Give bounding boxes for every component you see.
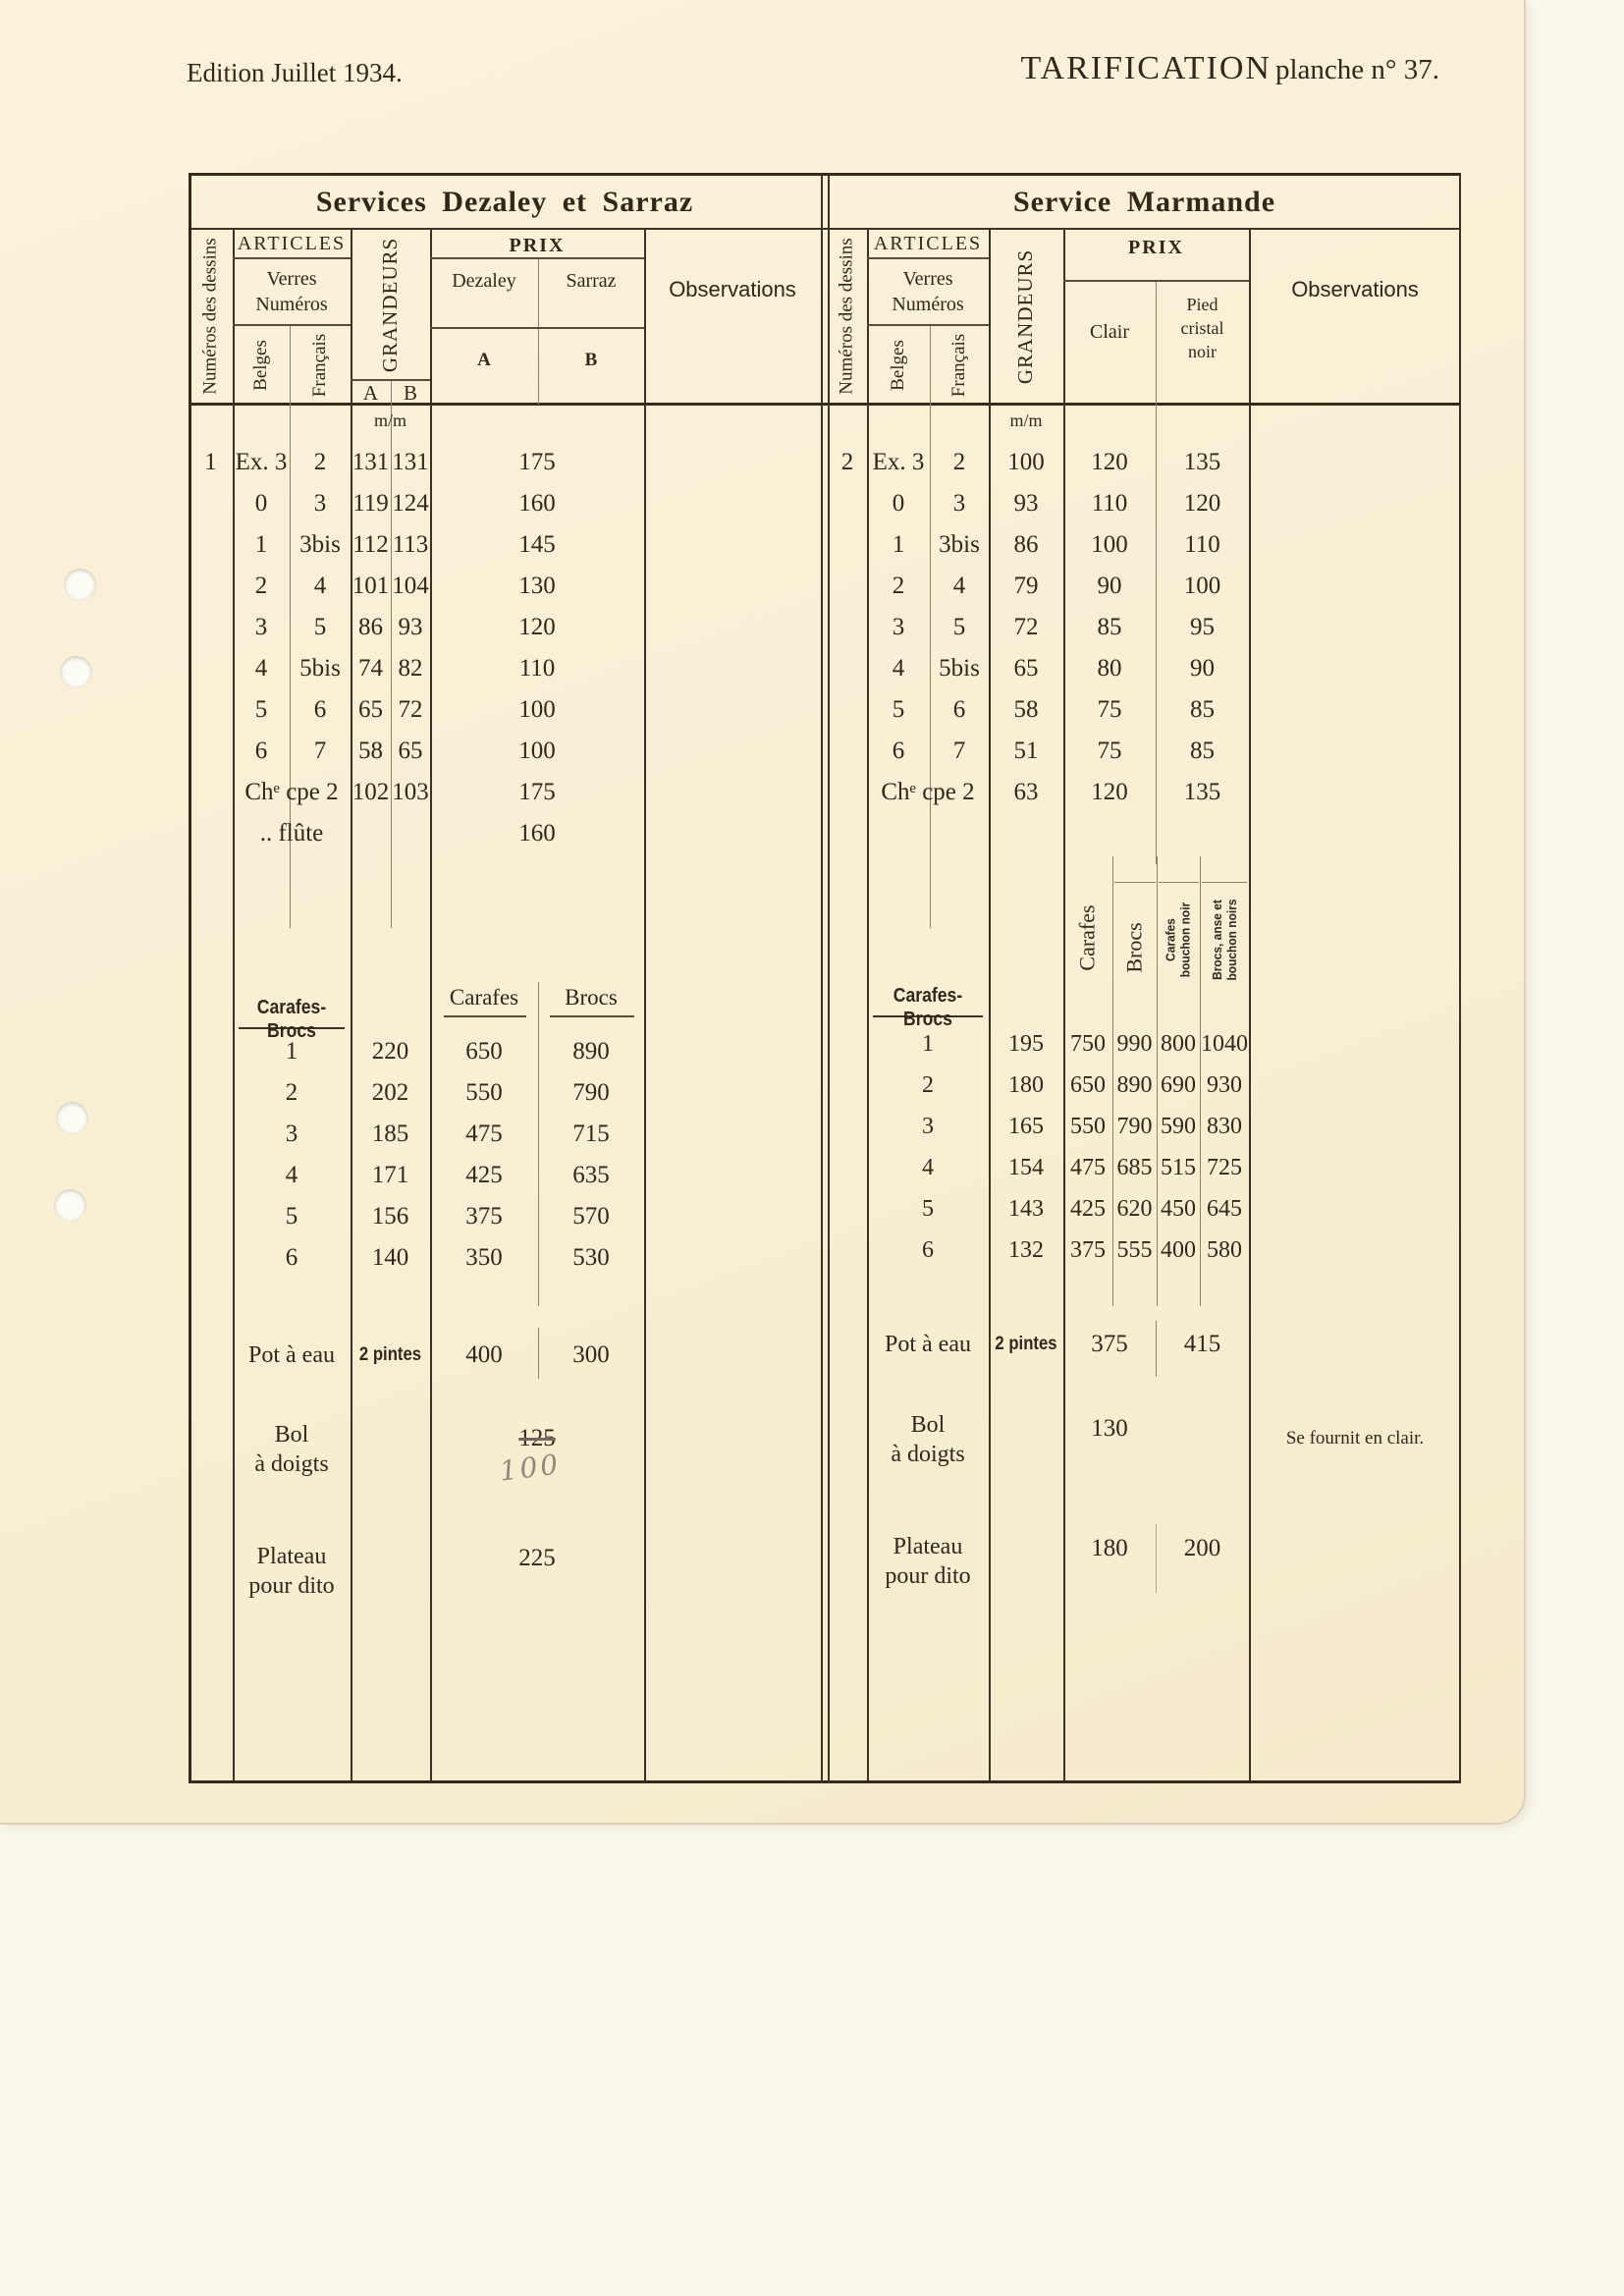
grandeur: 165 [989, 1114, 1063, 1140]
grandeur: 185 [351, 1121, 430, 1148]
right-francais-header: Français [930, 328, 989, 403]
left-prix-a-label: A [430, 350, 538, 372]
left-carafes-rows: 1 220 650 890 2 202 550 790 3 185 475 71… [233, 1031, 644, 1279]
rule [828, 173, 830, 1783]
grandeur: 140 [351, 1244, 430, 1272]
verre-belge: 0 [233, 490, 290, 518]
grandeur-b: 124 [391, 490, 430, 518]
carafe-numero: 5 [233, 1203, 351, 1230]
left-brocs-col-header: Brocs [538, 984, 644, 1011]
grandeur-a: 112 [351, 531, 391, 559]
right-belges-label: Belges [888, 340, 909, 391]
rule [189, 173, 1461, 176]
left-table-title: Services Dezaley et Sarraz [189, 185, 821, 220]
prix-broc-anse: 725 [1200, 1155, 1249, 1181]
verre-belge: 2 [867, 573, 930, 600]
prix-clair: 75 [1063, 696, 1156, 724]
prix-broc: 620 [1112, 1196, 1157, 1223]
left-prix-b-label: B [538, 350, 644, 372]
right-observations-header: Observations [1249, 277, 1461, 302]
prix-carafe-bouchon: 515 [1157, 1155, 1200, 1181]
right-plateau-label-2: pour dito [867, 1561, 989, 1591]
prix-broc: 555 [1112, 1237, 1157, 1264]
table-row: 3 5 72 85 95 [867, 607, 1249, 648]
right-brocs-anse-vcol-header: Brocs, anse etbouchon noirs [1200, 868, 1249, 1011]
right-table-title: Service Marmande [828, 185, 1461, 220]
right-verres-label: Verres [867, 267, 989, 291]
verre-belge: Ex. 3 [867, 449, 930, 476]
verre-francais: 2 [930, 449, 989, 476]
carafe-numero: 1 [867, 1031, 989, 1058]
prix-carafe-bouchon: 690 [1157, 1072, 1200, 1099]
left-dessins-header: Numéros des dessins [189, 234, 233, 399]
carafe-numero: 5 [867, 1196, 989, 1223]
prix-carafe: 750 [1063, 1031, 1112, 1058]
right-pot-clair: 375 [1063, 1324, 1156, 1365]
rule [233, 257, 351, 259]
table-row: 3 5 86 93 120 [233, 607, 644, 648]
rule [430, 327, 644, 329]
prix-pied: 135 [1156, 449, 1249, 476]
brocs-anse-vlabel: Brocs, anse etbouchon noirs [1210, 899, 1239, 980]
table-row: 5 156 375 570 [233, 1196, 644, 1237]
verre-belge: Ex. 3 [233, 449, 290, 476]
grandeur: 65 [989, 655, 1063, 683]
right-brocs-vcol-header: Brocs [1112, 884, 1157, 1011]
verre-francais: 2 [290, 449, 351, 476]
rule [867, 324, 989, 326]
verre-belge: 4 [867, 655, 930, 683]
grandeur-b: 65 [391, 738, 430, 765]
prix: 130 [430, 573, 644, 600]
right-plateau-pied: 200 [1156, 1534, 1249, 1563]
grandeur: 86 [989, 531, 1063, 559]
prix-broc: 715 [538, 1121, 644, 1148]
verre-francais: 5 [930, 614, 989, 641]
right-belges-header: Belges [867, 328, 930, 403]
left-bol-label-2: à doigts [233, 1449, 351, 1479]
left-pot-size: 2 pintes [355, 1335, 425, 1376]
table-row: 1 3bis 112 113 145 [233, 524, 644, 566]
prix: 160 [430, 490, 644, 518]
right-dessins-label: Numéros des dessins [837, 238, 858, 394]
table-row: 4 5bis 74 82 110 [233, 648, 644, 689]
grandeur-a: 119 [351, 490, 391, 518]
grandeur: 154 [989, 1155, 1063, 1181]
table-row: 1 3bis 86 100 110 [867, 524, 1249, 566]
right-prix-header: PRIX [1063, 236, 1249, 259]
grandeur-a: 101 [351, 573, 391, 600]
prix-pied: 100 [1156, 573, 1249, 600]
carafe-numero: 2 [233, 1079, 351, 1107]
grandeur: 93 [989, 490, 1063, 518]
right-bol-label-2: à doigts [867, 1440, 989, 1469]
prix-pied: 120 [1156, 490, 1249, 518]
verre-francais: 4 [290, 573, 351, 600]
right-plateau-label-1: Plateau [867, 1532, 989, 1561]
grandeur: 72 [989, 614, 1063, 641]
prix-carafe: 550 [430, 1079, 538, 1107]
table-row: 3 185 475 715 [233, 1114, 644, 1155]
verre-belge: 3 [233, 614, 290, 641]
prix-broc: 635 [538, 1162, 644, 1189]
verre-francais: 6 [290, 696, 351, 724]
prix-carafe-bouchon: 800 [1157, 1031, 1200, 1058]
prix-carafe: 550 [1063, 1114, 1112, 1140]
right-pied-label-1: Pied [1156, 295, 1249, 316]
rule [189, 1780, 1461, 1783]
left-pot-prix-b: 300 [538, 1335, 644, 1376]
right-coupe-grandeur: 63 [989, 772, 1063, 813]
rule [444, 1015, 526, 1017]
prix-carafe-bouchon: 450 [1157, 1196, 1200, 1223]
verre-francais: 3bis [930, 531, 989, 559]
verre-belge: 1 [867, 531, 930, 559]
prix-clair: 85 [1063, 614, 1156, 641]
prix-broc: 890 [1112, 1072, 1157, 1099]
table-row: 3 165 550 790 590 830 [867, 1106, 1249, 1147]
grandeur-a: 74 [351, 655, 391, 683]
prix-pied: 95 [1156, 614, 1249, 641]
left-coupe-grandeur-b: 103 [391, 772, 430, 813]
grandeur: 143 [989, 1196, 1063, 1223]
right-coupe-pied: 135 [1156, 772, 1249, 813]
table-row: 6 7 58 65 100 [233, 731, 644, 772]
table-row: 0 3 93 110 120 [867, 483, 1249, 524]
left-grandeurs-label: GRANDEURS [378, 237, 403, 371]
verre-francais: 5 [290, 614, 351, 641]
verre-francais: 5bis [930, 655, 989, 683]
rule [1114, 882, 1156, 883]
left-plateau-label-1: Plateau [233, 1542, 351, 1571]
rule [821, 173, 823, 1783]
verre-francais: 6 [930, 696, 989, 724]
verre-belge: 5 [233, 696, 290, 724]
right-carafes-vcol-header: Carafes [1063, 864, 1112, 1011]
prix-pied: 90 [1156, 655, 1249, 683]
grandeur-b: 72 [391, 696, 430, 724]
left-belges-label: Belges [250, 340, 272, 391]
right-mm-label: m/m [989, 410, 1063, 432]
verre-francais: 4 [930, 573, 989, 600]
grandeur: 79 [989, 573, 1063, 600]
prix-broc: 790 [538, 1079, 644, 1107]
right-pied-label-2: cristal [1156, 318, 1249, 340]
verre-francais: 7 [290, 738, 351, 765]
prix-broc: 685 [1112, 1155, 1157, 1181]
left-coupe-prix: 175 [430, 772, 644, 813]
prix-broc-anse: 580 [1200, 1237, 1249, 1264]
grandeur-a: 65 [351, 696, 391, 724]
prix-broc-anse: 930 [1200, 1072, 1249, 1099]
table-row: 6 132 375 555 400 580 [867, 1230, 1249, 1271]
table-row: 1 220 650 890 [233, 1031, 644, 1072]
grandeur: 58 [989, 696, 1063, 724]
punch-hole [64, 569, 96, 601]
table-row: 5 143 425 620 450 645 [867, 1188, 1249, 1230]
table-row: 2 180 650 890 690 930 [867, 1065, 1249, 1106]
left-francais-header: Français [290, 328, 351, 403]
verre-francais: 7 [930, 738, 989, 765]
right-pot-label: Pot à eau [867, 1324, 989, 1365]
prix: 100 [430, 696, 644, 724]
prix-broc: 530 [538, 1244, 644, 1272]
left-grandeurs-header: GRANDEURS [351, 232, 430, 377]
right-pied-label-3: noir [1156, 342, 1249, 363]
left-bol-label-1: Bol [233, 1420, 351, 1449]
grandeur-a: 86 [351, 614, 391, 641]
rule [189, 228, 1461, 230]
right-clair-label: Clair [1063, 320, 1156, 344]
carafe-numero: 6 [867, 1237, 989, 1264]
plate-title: TARIFICATION planche n° 37. [884, 49, 1439, 89]
prix: 100 [430, 738, 644, 765]
table-row: 6 140 350 530 [233, 1237, 644, 1279]
verre-francais: 3 [930, 490, 989, 518]
grandeur-b: 82 [391, 655, 430, 683]
verre-belge: 4 [233, 655, 290, 683]
left-carafes-col-header: Carafes [430, 984, 538, 1011]
prix-carafe-bouchon: 590 [1157, 1114, 1200, 1140]
left-flute-prix: 160 [430, 813, 644, 854]
left-dessins-label: Numéros des dessins [200, 238, 222, 394]
right-bol-clair: 130 [1063, 1414, 1156, 1444]
prix-pied: 110 [1156, 531, 1249, 559]
table-row: 2 4 79 90 100 [867, 566, 1249, 607]
prix-carafe: 475 [430, 1121, 538, 1148]
carafes-vlabel: Carafes [1075, 904, 1101, 970]
carafe-numero: 4 [233, 1162, 351, 1189]
punch-hole [60, 656, 92, 688]
verre-belge: 3 [867, 614, 930, 641]
prix-clair: 90 [1063, 573, 1156, 600]
left-dessin-number: 1 [189, 442, 233, 483]
rule [644, 228, 646, 1780]
left-sarraz-label: Sarraz [538, 269, 644, 293]
plate-title-number: planche n° 37. [1275, 54, 1439, 85]
prix-carafe: 650 [430, 1038, 538, 1066]
verre-belge: 6 [233, 738, 290, 765]
rule [1249, 228, 1251, 1780]
table-row: 4 154 475 685 515 725 [867, 1147, 1249, 1188]
left-plateau-label-2: pour dito [233, 1571, 351, 1601]
right-grandeurs-label: GRANDEURS [1014, 248, 1039, 383]
left-mm-label: m/m [351, 410, 430, 432]
right-articles-header: ARTICLES [867, 232, 989, 255]
rule [1063, 280, 1249, 282]
vlabel-line1: Carafes [1164, 918, 1178, 961]
left-observations-header: Observations [644, 277, 821, 302]
grandeur: 132 [989, 1237, 1063, 1264]
prix-broc: 790 [1112, 1114, 1157, 1140]
plate-title-main: TARIFICATION [1020, 50, 1272, 86]
right-bol-observation: Se fournit en clair. [1249, 1426, 1461, 1451]
right-francais-label: Français [948, 334, 970, 397]
table-row: 1 195 750 990 800 1040 [867, 1023, 1249, 1065]
left-grandeur-a-label: A [351, 381, 391, 406]
left-belges-header: Belges [233, 328, 290, 403]
carafes-bouchon-vlabel: Carafesbouchon noir [1164, 902, 1193, 977]
right-coupe-clair: 120 [1063, 772, 1156, 813]
grandeur: 180 [989, 1072, 1063, 1099]
table-row: 6 7 51 75 85 [867, 731, 1249, 772]
right-carafes-bouchon-vcol-header: Carafesbouchon noir [1157, 868, 1200, 1011]
left-grandeur-b-label: B [391, 381, 430, 406]
table-row: Ex. 3 2 131 131 175 [233, 442, 644, 483]
right-dessins-header: Numéros des dessins [828, 234, 867, 399]
brocs-vlabel: Brocs [1122, 922, 1148, 972]
prix-clair: 75 [1063, 738, 1156, 765]
left-numeros-label: Numéros [233, 293, 351, 316]
left-dezaley-label: Dezaley [430, 269, 538, 293]
prix-broc: 990 [1112, 1031, 1157, 1058]
left-coupe-grandeur-a: 102 [351, 772, 391, 813]
right-dessin-number: 2 [828, 442, 867, 483]
prix-broc: 570 [538, 1203, 644, 1230]
prix-carafe: 375 [430, 1203, 538, 1230]
scanned-tarification-page: Edition Juillet 1934. TARIFICATION planc… [0, 0, 1624, 2296]
verre-belge: 0 [867, 490, 930, 518]
grandeur-b: 113 [391, 531, 430, 559]
prix-broc: 890 [538, 1038, 644, 1066]
table-row: Ex. 3 2 100 120 135 [867, 442, 1249, 483]
prix: 110 [430, 655, 644, 683]
prix-pied: 85 [1156, 738, 1249, 765]
carafe-numero: 1 [233, 1038, 351, 1066]
grandeur: 195 [989, 1031, 1063, 1058]
edition-label: Edition Juillet 1934. [187, 57, 579, 88]
grandeur: 156 [351, 1203, 430, 1230]
left-pot-label: Pot à eau [233, 1335, 351, 1376]
rule [430, 257, 644, 259]
table-row: 2 4 101 104 130 [233, 566, 644, 607]
verre-francais: 3 [290, 490, 351, 518]
verre-belge: 2 [233, 573, 290, 600]
prix-clair: 110 [1063, 490, 1156, 518]
left-pot-prix-a: 400 [430, 1335, 538, 1376]
prix: 120 [430, 614, 644, 641]
prix-pied: 85 [1156, 696, 1249, 724]
right-bol-label-1: Bol [867, 1410, 989, 1440]
rule [189, 173, 191, 1783]
rule [550, 1015, 634, 1017]
grandeur: 171 [351, 1162, 430, 1189]
right-pot-size: 2 pintes [994, 1324, 1059, 1365]
rule [1459, 173, 1461, 1783]
grandeur: 220 [351, 1038, 430, 1066]
table-row: 0 3 119 124 160 [233, 483, 644, 524]
rule [867, 257, 989, 259]
prix: 175 [430, 449, 644, 476]
prix-broc-anse: 1040 [1200, 1031, 1249, 1058]
rule [233, 324, 351, 326]
prix-carafe: 350 [430, 1244, 538, 1272]
grandeur: 51 [989, 738, 1063, 765]
punch-hole [54, 1189, 86, 1222]
carafe-numero: 3 [233, 1121, 351, 1148]
vlabel-line2: bouchon noirs [1224, 899, 1239, 980]
carafe-numero: 2 [867, 1072, 989, 1099]
right-pot-pied: 415 [1156, 1324, 1249, 1365]
table-row: 5 6 65 72 100 [233, 689, 644, 731]
vlabel-line2: bouchon noir [1178, 902, 1193, 977]
table-row: 2 202 550 790 [233, 1072, 644, 1114]
carafe-numero: 6 [233, 1244, 351, 1272]
table-row: 4 5bis 65 80 90 [867, 648, 1249, 689]
grandeur-b: 93 [391, 614, 430, 641]
prix-carafe: 375 [1063, 1237, 1112, 1264]
vlabel-line1: Brocs, anse et [1210, 900, 1224, 980]
left-prix-header: PRIX [430, 234, 644, 257]
left-coupe-label: Chᵉ cpe 2 [233, 772, 351, 813]
left-plateau-prix: 225 [430, 1544, 644, 1573]
prix-carafe: 650 [1063, 1072, 1112, 1099]
verre-belge: 5 [867, 696, 930, 724]
verre-belge: 6 [867, 738, 930, 765]
grandeur-a: 131 [351, 449, 391, 476]
right-plateau-clair: 180 [1063, 1534, 1156, 1563]
right-coupe-label: Chᵉ cpe 2 [867, 772, 989, 813]
punch-hole [56, 1102, 88, 1134]
right-grandeurs-header: GRANDEURS [989, 232, 1063, 401]
left-articles-header: ARTICLES [233, 232, 351, 255]
grandeur: 100 [989, 449, 1063, 476]
prix-clair: 80 [1063, 655, 1156, 683]
left-bol-prix-struck: 125 [430, 1424, 644, 1453]
grandeur-b: 131 [391, 449, 430, 476]
prix-carafe-bouchon: 400 [1157, 1237, 1200, 1264]
prix: 145 [430, 531, 644, 559]
grandeur-b: 104 [391, 573, 430, 600]
right-verres-rows: Ex. 3 2 100 120 135 0 3 93 110 120 1 3bi… [867, 442, 1249, 772]
grandeur: 202 [351, 1079, 430, 1107]
prix-broc-anse: 645 [1200, 1196, 1249, 1223]
table-row: 5 6 58 75 85 [867, 689, 1249, 731]
prix-carafe: 475 [1063, 1155, 1112, 1181]
verre-francais: 3bis [290, 531, 351, 559]
grandeur-a: 58 [351, 738, 391, 765]
left-verres-rows: Ex. 3 2 131 131 175 0 3 119 124 160 1 3b… [233, 442, 644, 772]
right-carafes-rows: 1 195 750 990 800 1040 2 180 650 890 690… [867, 1023, 1249, 1271]
carafe-numero: 4 [867, 1155, 989, 1181]
prix-clair: 120 [1063, 449, 1156, 476]
verre-francais: 5bis [290, 655, 351, 683]
prix-clair: 100 [1063, 531, 1156, 559]
carafe-numero: 3 [867, 1114, 989, 1140]
left-flute-label: .. flûte [233, 813, 351, 854]
prix-carafe: 425 [1063, 1196, 1112, 1223]
table-row: 4 171 425 635 [233, 1155, 644, 1196]
verre-belge: 1 [233, 531, 290, 559]
prix-carafe: 425 [430, 1162, 538, 1189]
right-numeros-label: Numéros [867, 293, 989, 316]
left-francais-label: Français [309, 334, 331, 397]
prix-broc-anse: 830 [1200, 1114, 1249, 1140]
left-verres-label: Verres [233, 267, 351, 291]
